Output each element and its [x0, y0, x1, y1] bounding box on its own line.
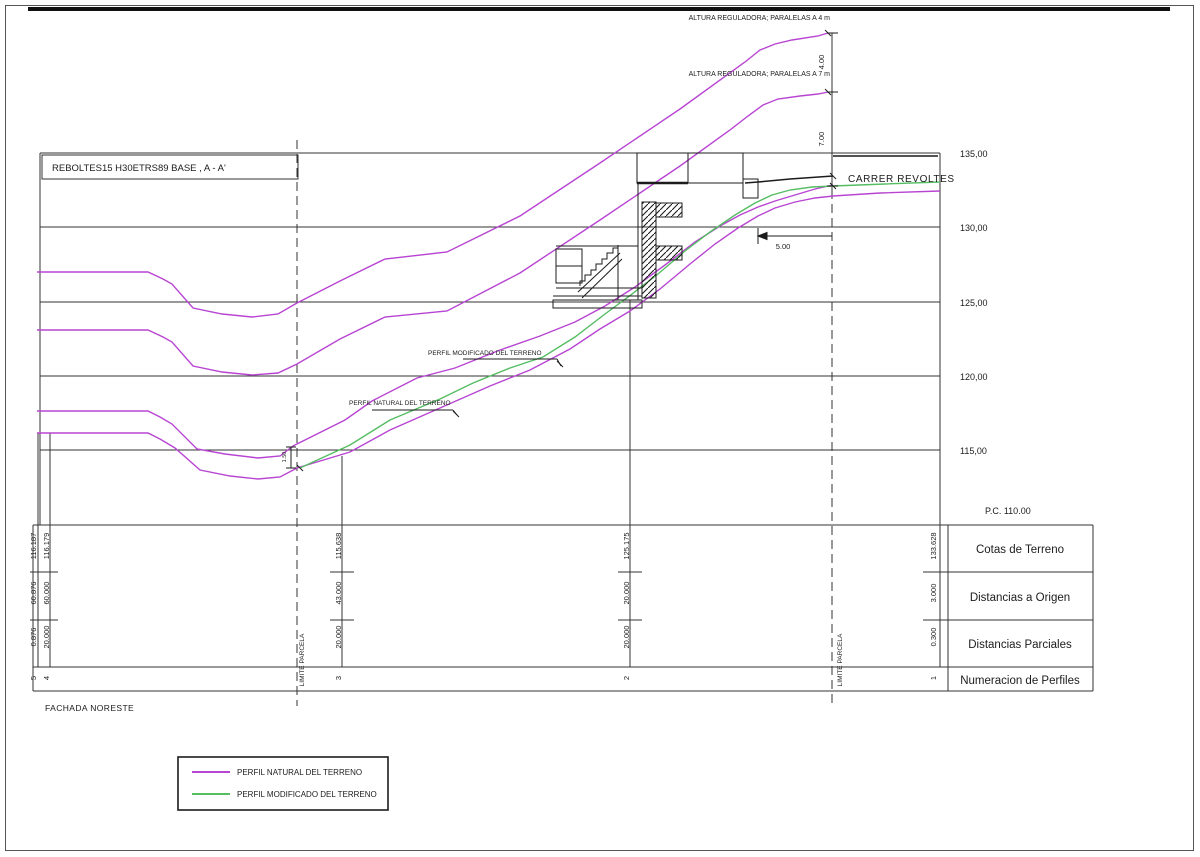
origen-p4: 60.000 [42, 582, 51, 605]
street-label: CARRER REVOLTES [848, 174, 955, 185]
stairs [580, 248, 618, 286]
origen-p5: 60.876 [29, 582, 38, 605]
parcial-p2: 20.000 [622, 626, 631, 649]
num-p5: 5 [29, 676, 38, 680]
cota-p2: 125.175 [622, 532, 631, 559]
perfil-modificado-curve [300, 182, 940, 468]
perfil-natural-lower-curve [37, 191, 940, 479]
elevation-115: 115,00 [960, 446, 987, 456]
cota-p4: 116.179 [42, 533, 51, 560]
sheet-border [6, 6, 1194, 851]
parcial-p4: 20.000 [42, 626, 51, 649]
num-p2: 2 [622, 676, 631, 680]
origen-p2: 20.000 [622, 582, 631, 605]
limite-parcela-label-right: LIMITE PARCELA [837, 633, 844, 686]
elevation-125: 125,00 [960, 298, 988, 308]
cota-p5: 116.187 [29, 533, 38, 560]
datum-label: P.C. 110.00 [985, 506, 1031, 516]
elevation-130: 130,00 [960, 223, 988, 233]
num-p4: 4 [42, 676, 51, 680]
legend-modificado-label: PERFIL MODIFICADO DEL TERRENO [237, 790, 377, 799]
cota-p3: 115.638 [334, 533, 343, 560]
table-row-labels: Cotas de Terreno Distancias a Origen Dis… [960, 544, 1080, 687]
origen-p3: 43.000 [334, 582, 343, 605]
cota-p1: 133.628 [929, 532, 938, 559]
drawing-sheet: REBOLTES15 H30ETRS89 BASE , A - A' [0, 0, 1200, 857]
origen-p1: 3.000 [929, 584, 938, 603]
dim-1-50: 1.50 [282, 452, 288, 463]
dim-4m: 4.00 [817, 55, 826, 70]
elevation-120: 120,00 [960, 372, 988, 382]
parcial-p1: 0.300 [929, 628, 938, 647]
section-drawing: REBOLTES15 H30ETRS89 BASE , A - A' [0, 0, 1200, 857]
row-label-numeracion: Numeracion de Perfiles [960, 675, 1080, 687]
row-label-parciales: Distancias Parciales [968, 639, 1072, 651]
parcial-p5: 0.876 [29, 628, 38, 647]
elevation-axis-labels: 135,00 130,00 125,00 120,00 115,00 [960, 149, 988, 456]
row-label-cotas: Cotas de Terreno [976, 544, 1064, 556]
limite-parcela-label-left: LIMITE PARCELA [299, 633, 306, 686]
perfil-natural-label: PERFIL NATURAL DEL TERRENO [349, 400, 451, 407]
dim-7m: 7.00 [817, 132, 826, 147]
num-p3: 3 [334, 676, 343, 680]
altura-reguladora-4m-label: ALTURA REGULADORA; PARALELAS A 4 m [689, 15, 831, 22]
parcial-p3: 20.000 [334, 626, 343, 649]
legend-natural-label: PERFIL NATURAL DEL TERRENO [237, 768, 362, 777]
perfil-natural-upper-curve [37, 185, 833, 458]
num-p1: 1 [929, 676, 938, 680]
altura-reguladora-7m-label: ALTURA REGULADORA; PARALELAS A 7 m [689, 71, 831, 78]
elevation-135: 135,00 [960, 149, 988, 159]
row-label-origen: Distancias a Origen [970, 592, 1070, 604]
facade-label: FACHADA NORESTE [45, 703, 134, 713]
drawing-title: REBOLTES15 H30ETRS89 BASE , A - A' [52, 163, 226, 174]
dim-5m: 5.00 [776, 242, 791, 251]
terrain-curves [37, 33, 940, 479]
profile-values: 116.187 60.876 0.876 5 116.179 60.000 20… [29, 532, 938, 680]
legend: PERFIL NATURAL DEL TERRENO PERFIL MODIFI… [178, 757, 388, 810]
limite-parcela-lines [297, 33, 832, 706]
perfil-modificado-label: PERFIL MODIFICADO DEL TERRENO [428, 350, 542, 357]
